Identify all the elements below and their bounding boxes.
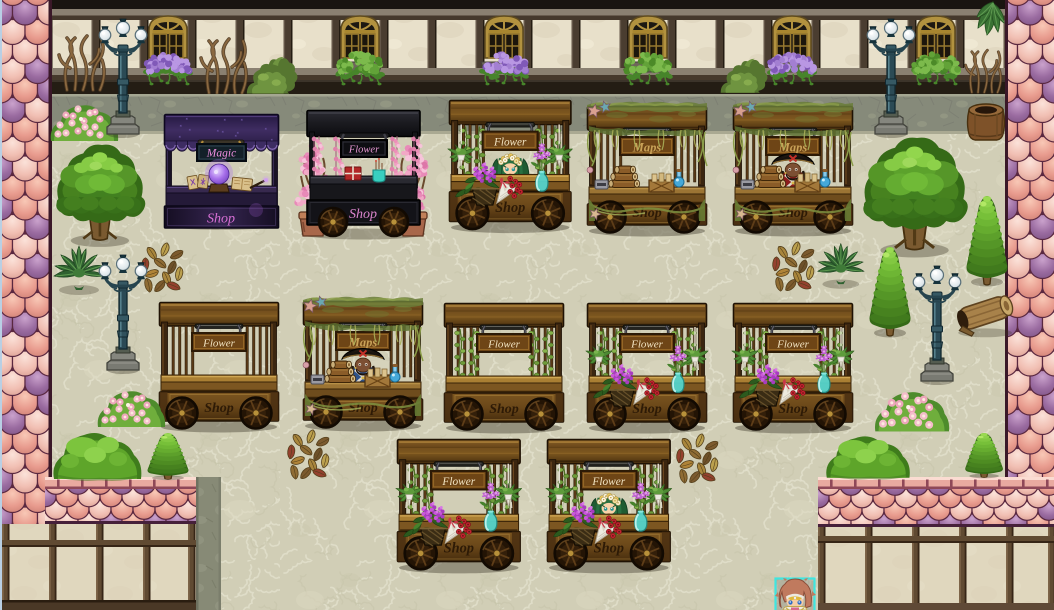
svg-text:Shop: Shop [349, 207, 377, 222]
svg-text:Maps: Maps [348, 336, 378, 350]
svg-text:Flower: Flower [776, 339, 809, 351]
svg-text:Shop: Shop [778, 402, 808, 417]
svg-text:Shop: Shop [594, 540, 624, 556]
svg-text:Maps: Maps [632, 141, 662, 155]
svg-text:Flower: Flower [630, 339, 663, 351]
svg-text:Flower: Flower [487, 339, 520, 351]
svg-text:Flower: Flower [441, 476, 475, 488]
svg-text:Flower: Flower [493, 136, 527, 148]
svg-text:Shop: Shop [204, 401, 234, 416]
svg-text:Maps: Maps [778, 141, 808, 155]
svg-text:Shop: Shop [495, 200, 525, 216]
svg-text:Shop: Shop [444, 540, 474, 556]
svg-text:Shop: Shop [632, 402, 662, 417]
svg-text:Flower: Flower [202, 338, 235, 350]
svg-text:Magic: Magic [206, 148, 236, 160]
svg-text:Flower: Flower [591, 476, 625, 488]
svg-text:Shop: Shop [207, 212, 235, 227]
svg-text:Shop: Shop [489, 402, 519, 417]
svg-text:Flower: Flower [348, 145, 380, 156]
